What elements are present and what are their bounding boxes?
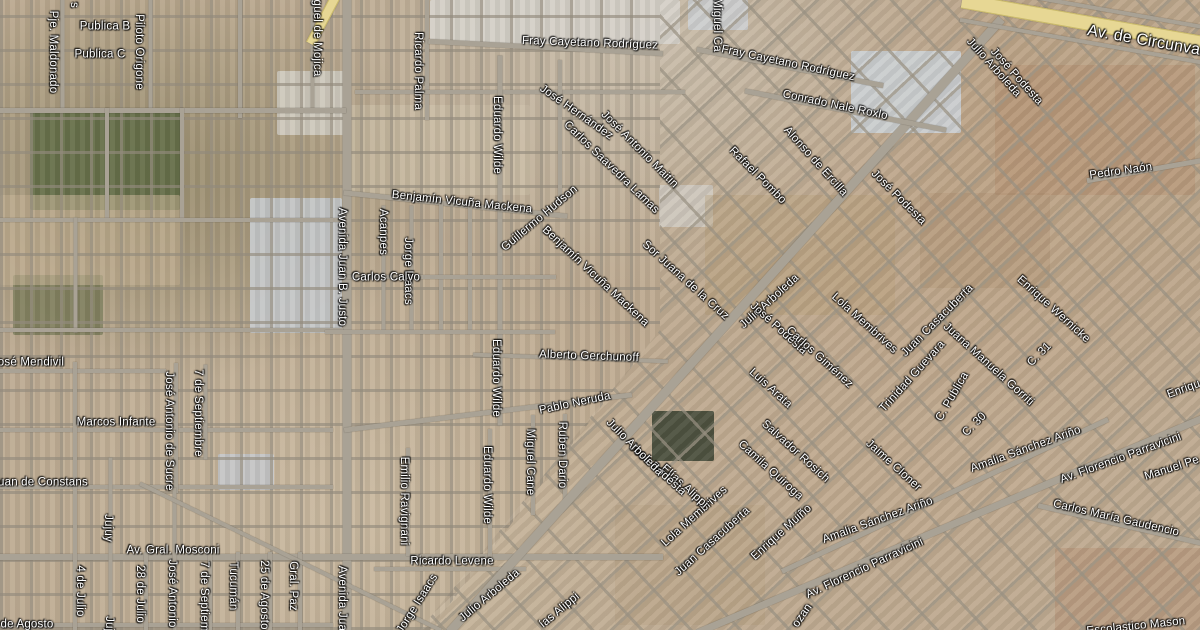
street-label: José Podesta xyxy=(868,168,927,227)
street-label: Conrado Nale Roxlo xyxy=(781,89,888,123)
street-label: Ruben Dario xyxy=(555,422,567,489)
street-label: Jujuy xyxy=(102,616,114,630)
street-label: Pedro Naón xyxy=(1089,162,1153,182)
street-label: Av. Florencio Parravicini xyxy=(1059,432,1183,487)
street-label: José Podesta xyxy=(626,442,687,499)
street-label: ías Alippi xyxy=(538,591,582,630)
street-label: Marcos Infante xyxy=(77,417,156,429)
street-label: Benjamín Vicuña Mackena xyxy=(539,225,650,330)
street-label: José Podesta xyxy=(988,46,1045,107)
street-label: Carlos Calvo xyxy=(352,272,420,284)
street-label: 7 de Septiembre xyxy=(191,369,203,456)
street-label: Avenida Juan B. Justo xyxy=(335,208,347,326)
street-label: Juana Manuela Gorriti xyxy=(941,321,1036,408)
street-label: Trinidad Guevara xyxy=(878,339,948,415)
street-label: Jorge Isaacs xyxy=(401,237,413,305)
street-label: de Agosto xyxy=(1,619,54,630)
street-label: Julio Arboleda xyxy=(738,273,801,332)
street-label: Av. de Circunvala xyxy=(1086,23,1200,61)
street-label: ozan xyxy=(791,602,815,630)
street-label: Pablo Neruda xyxy=(538,391,612,417)
street-label: 4 de Julio xyxy=(73,565,85,616)
street-label: 28 de Julio xyxy=(133,565,145,623)
street-label: Acanpes xyxy=(376,209,388,255)
street-label: Av. Florencio Parravicini xyxy=(805,537,926,601)
street-label: Eduardo Wilde xyxy=(480,446,492,524)
street-label: Publica B xyxy=(80,21,130,33)
satellite-map[interactable]: sPje. MaldonadoPublica BPublica CPiloto … xyxy=(0,0,1200,630)
street-label: C. 30 xyxy=(961,411,989,439)
street-label: Tucumán xyxy=(226,562,238,611)
street-label: Carlos María Gaudencio xyxy=(1052,499,1180,539)
street-label: Jujuy xyxy=(101,514,113,542)
street-label: José Antonio de Sucre xyxy=(165,559,177,630)
street-label: Sor Juana de la Cruz xyxy=(640,239,731,323)
street-label: Juan de Constans xyxy=(0,477,88,489)
street-label: Carlos Giménez xyxy=(783,325,854,391)
street-label: José Antonio Maitin xyxy=(598,109,679,190)
street-label: Amalia Sánchez Ariño xyxy=(821,496,934,547)
street-label: Fray Cayetano Rodríguez xyxy=(720,44,856,84)
street-labels-layer: sPje. MaldonadoPublica BPublica CPiloto … xyxy=(0,0,1200,630)
street-label: Lola Membrives xyxy=(829,292,899,357)
street-label: Lola Membrives xyxy=(660,485,730,550)
street-label: Piloto Origone xyxy=(132,14,144,90)
street-label: Eduardo Wilde xyxy=(489,339,501,417)
street-label: Amalia Sánchez Ariño xyxy=(969,425,1082,476)
street-label: 25 de Agosto xyxy=(257,560,269,630)
street-label: Pje. Maldonado xyxy=(46,11,58,94)
street-label: Escolastico Mason xyxy=(1086,616,1186,630)
street-label: Benjamín Vicuña Mackena xyxy=(391,190,533,216)
street-label: Ricardo Palma xyxy=(411,32,423,110)
street-label: 7 de Septiembre xyxy=(197,561,209,630)
street-label: Av. Gral. Mosconi xyxy=(126,545,219,557)
street-label: Miguel Cane xyxy=(523,429,535,496)
street-label: Publica C xyxy=(74,49,125,61)
street-label: guel de Mojica xyxy=(310,0,322,76)
street-label: José Hernández xyxy=(537,83,614,142)
street-label: Emilio Ravignani xyxy=(397,457,409,546)
street-label: Jaime Cloner xyxy=(863,438,923,493)
street-label: Miguel Ca xyxy=(710,0,722,52)
street-label: Carlos Saavedra Lamas xyxy=(561,120,661,217)
street-label: Avenida Juan B. Justo xyxy=(335,566,347,630)
street-label: Juan Casacuberta xyxy=(900,283,976,359)
street-label: Julio Arboleda xyxy=(458,567,523,624)
street-label: Enrique Muiño xyxy=(750,503,815,563)
street-label: Luis Arata xyxy=(746,367,793,411)
street-label: s xyxy=(67,2,79,8)
street-label: Ricardo Levene xyxy=(410,556,493,568)
street-label: Eduardo Wilde xyxy=(490,96,502,174)
street-label: C. Publica xyxy=(934,371,971,424)
street-label: Julio Arboleda xyxy=(603,417,664,478)
street-label: Elías Alippi xyxy=(658,463,709,511)
street-label: Camila Quiroga xyxy=(735,439,804,503)
street-label: José Antonio de Sucre xyxy=(162,371,174,490)
street-label: Rafael Pombo xyxy=(726,145,787,206)
street-label: Alonso de Ercilla xyxy=(781,125,849,199)
street-label: Enriqu xyxy=(1166,379,1200,402)
street-label: Gral. Paz xyxy=(286,561,298,611)
street-label: Salvador Rosich xyxy=(759,419,831,486)
street-label: Guillermo Hudson xyxy=(500,184,580,254)
street-label: Fray Cayetano Rodríguez xyxy=(522,36,659,52)
street-label: Alberto Gerchunoff xyxy=(539,350,639,365)
street-label: C. 31 xyxy=(1026,341,1054,369)
street-label: Enrique Wernicke xyxy=(1014,274,1091,345)
street-label: Jorge Isaacs xyxy=(395,572,441,630)
street-label: Juan Casacuberta xyxy=(673,505,752,578)
street-label: Julio Arboleda xyxy=(964,36,1023,99)
street-label: José Podesta xyxy=(747,301,808,358)
street-label: Manuel Pe xyxy=(1143,455,1200,483)
street-label: José Mendivil xyxy=(0,357,64,369)
